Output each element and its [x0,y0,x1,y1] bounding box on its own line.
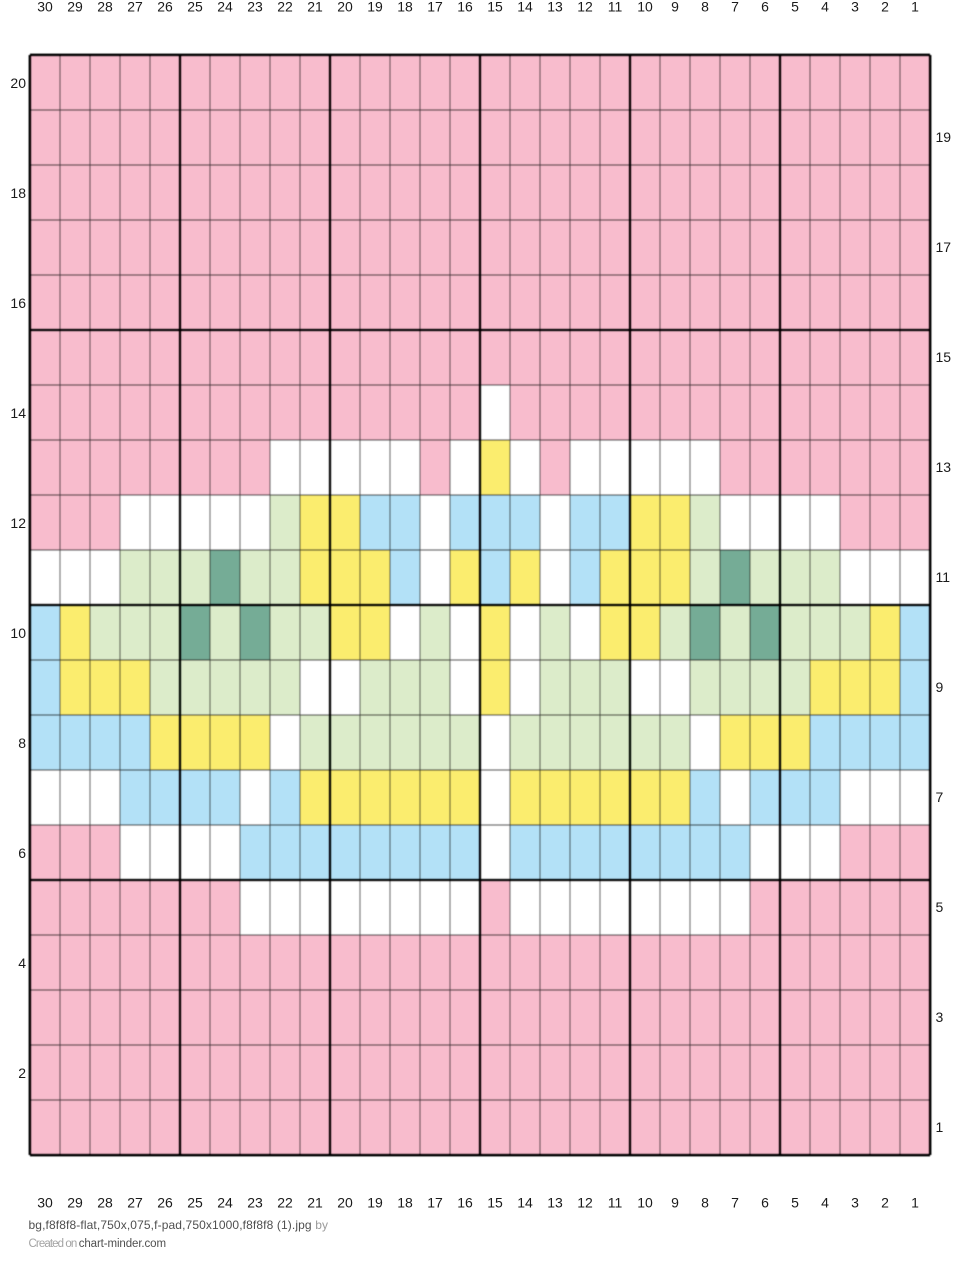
svg-text:28: 28 [97,0,113,15]
svg-text:11: 11 [936,569,951,585]
svg-text:9: 9 [671,0,679,15]
svg-text:5: 5 [791,1195,799,1211]
svg-text:24: 24 [217,1195,233,1211]
svg-text:18: 18 [397,1195,413,1211]
svg-text:22: 22 [277,1195,293,1211]
svg-text:12: 12 [577,0,593,15]
svg-text:29: 29 [67,1195,83,1211]
svg-text:25: 25 [187,0,203,15]
svg-text:26: 26 [157,1195,173,1211]
svg-text:2: 2 [881,0,889,15]
svg-text:22: 22 [277,0,293,15]
svg-text:3: 3 [851,1195,859,1211]
svg-text:1: 1 [911,1195,919,1211]
svg-text:13: 13 [936,459,952,475]
svg-text:2: 2 [881,1195,889,1211]
svg-text:2: 2 [18,1065,26,1081]
svg-text:18: 18 [397,0,413,15]
svg-text:19: 19 [367,1195,383,1211]
svg-text:3: 3 [851,0,859,15]
svg-text:20: 20 [337,0,353,15]
svg-text:9: 9 [936,679,944,695]
svg-text:14: 14 [517,1195,533,1211]
svg-text:Created on chart-minder.com: Created on chart-minder.com [29,1238,166,1250]
svg-text:15: 15 [936,349,952,365]
svg-text:30: 30 [37,0,53,15]
svg-text:30: 30 [37,1195,53,1211]
svg-text:5: 5 [936,899,944,915]
svg-text:7: 7 [731,0,739,15]
svg-text:20: 20 [337,1195,353,1211]
svg-text:4: 4 [18,955,26,971]
svg-text:12: 12 [10,515,26,531]
svg-text:13: 13 [547,1195,563,1211]
svg-text:13: 13 [547,0,563,15]
svg-text:bg,f8f8f8-flat,750x,075,f-pad,: bg,f8f8f8-flat,750x,075,f-pad,750x1000,f… [29,1218,329,1232]
svg-text:27: 27 [127,1195,143,1211]
svg-text:24: 24 [217,0,233,15]
svg-text:29: 29 [67,0,83,15]
svg-text:23: 23 [247,0,263,15]
svg-text:14: 14 [10,405,26,421]
svg-text:21: 21 [307,1195,323,1211]
svg-text:28: 28 [97,1195,113,1211]
svg-text:17: 17 [427,0,443,15]
svg-text:11: 11 [608,1195,623,1211]
svg-text:16: 16 [457,1195,473,1211]
svg-text:8: 8 [701,1195,709,1211]
svg-text:4: 4 [821,0,829,15]
svg-text:6: 6 [18,845,26,861]
svg-text:25: 25 [187,1195,203,1211]
svg-text:8: 8 [18,735,26,751]
svg-text:27: 27 [127,0,143,15]
svg-text:20: 20 [10,75,26,91]
svg-text:18: 18 [10,185,26,201]
svg-text:26: 26 [157,0,173,15]
svg-text:19: 19 [936,129,952,145]
svg-text:6: 6 [761,0,769,15]
svg-text:7: 7 [731,1195,739,1211]
svg-text:17: 17 [427,1195,443,1211]
svg-text:10: 10 [637,0,653,15]
svg-text:6: 6 [761,1195,769,1211]
svg-text:19: 19 [367,0,383,15]
svg-text:15: 15 [487,1195,503,1211]
svg-text:11: 11 [608,0,623,15]
svg-text:10: 10 [10,625,26,641]
svg-text:9: 9 [671,1195,679,1211]
svg-text:4: 4 [821,1195,829,1211]
svg-text:16: 16 [10,295,26,311]
svg-text:1: 1 [936,1119,944,1135]
svg-text:17: 17 [936,239,952,255]
svg-text:21: 21 [307,0,323,15]
svg-text:3: 3 [936,1009,944,1025]
svg-text:1: 1 [911,0,919,15]
svg-text:12: 12 [577,1195,593,1211]
svg-text:14: 14 [517,0,533,15]
svg-text:5: 5 [791,0,799,15]
svg-text:7: 7 [936,789,944,805]
svg-text:15: 15 [487,0,503,15]
svg-text:10: 10 [637,1195,653,1211]
svg-text:23: 23 [247,1195,263,1211]
svg-text:8: 8 [701,0,709,15]
svg-text:16: 16 [457,0,473,15]
